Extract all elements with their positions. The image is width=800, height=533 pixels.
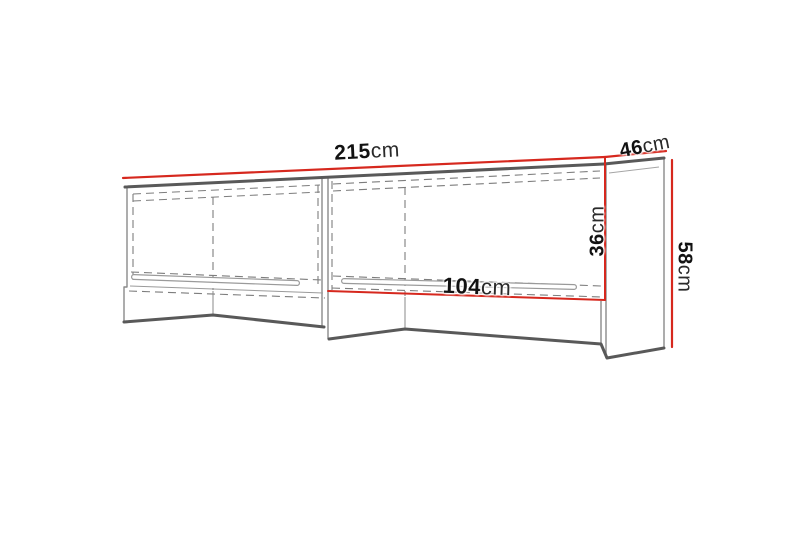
dimension-unit: cm — [370, 138, 400, 162]
dimension-unit: cm — [674, 265, 696, 293]
left-end-edge — [124, 187, 127, 322]
visible-thin-edges — [124, 158, 664, 358]
side-panel-inner-top-edge — [609, 167, 659, 173]
dimension-value: 215 — [334, 140, 372, 165]
dimension-value: 58 — [674, 242, 696, 265]
dimension-label-opening-width: 104cm — [442, 273, 511, 301]
hidden-top-edge-right-2 — [333, 178, 600, 191]
visible-thick-outline — [124, 158, 664, 358]
dimension-unit: cm — [481, 274, 512, 300]
dimension-label-opening-height: 36cm — [587, 206, 610, 257]
dimension-unit: cm — [587, 206, 609, 234]
left-apron-bottom-edge — [124, 315, 324, 327]
dimension-label-side-height: 58cm — [673, 242, 696, 293]
dimension-value: 36 — [587, 233, 609, 256]
dimension-label-total-width: 215cm — [334, 138, 401, 165]
cabinet-dimension-diagram: 215cm 46cm 58cm 36cm 104cm — [0, 0, 800, 533]
right-apron-bottom-edge — [329, 329, 664, 358]
dimension-unit: cm — [641, 131, 672, 158]
dimension-value: 104 — [442, 273, 481, 299]
hidden-top-edge-left-2 — [133, 192, 320, 201]
hidden-top-edge-right-1 — [333, 171, 600, 184]
